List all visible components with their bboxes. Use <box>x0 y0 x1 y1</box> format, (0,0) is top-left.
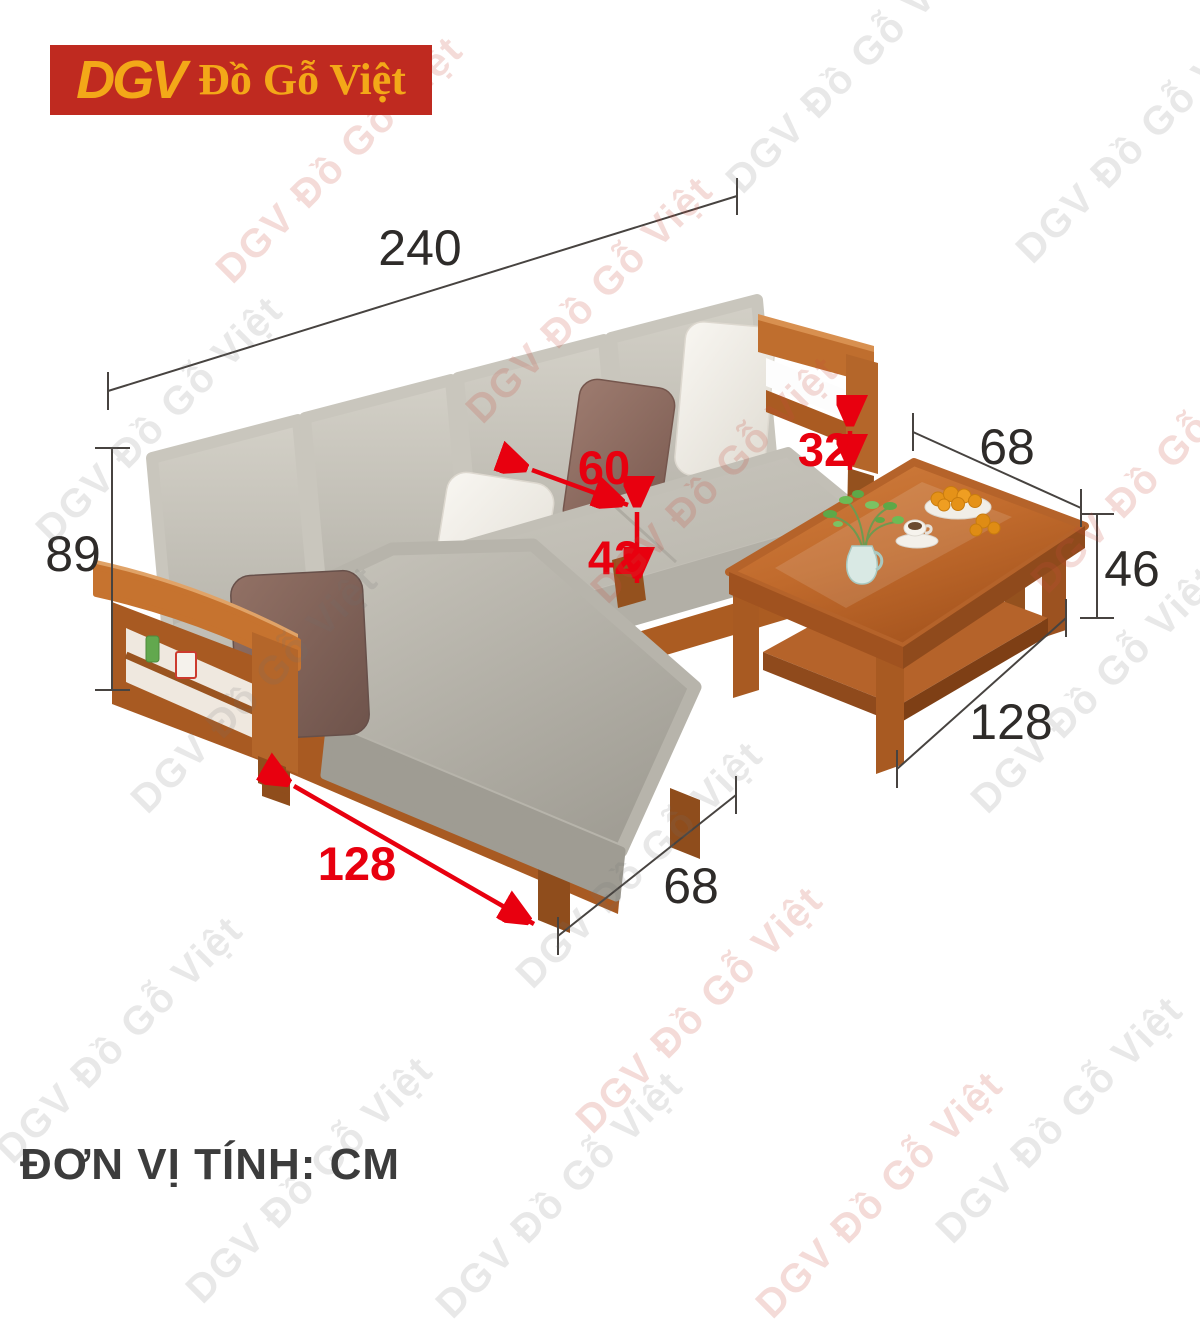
chaise-width-label: 68 <box>663 858 719 914</box>
seat-height-label: 42 <box>588 531 640 584</box>
table-length-label: 128 <box>969 694 1052 750</box>
unit-note: ĐƠN VỊ TÍNH: CM <box>20 1140 400 1190</box>
cushion-thickness-label: 32 <box>798 423 850 476</box>
shelf-bottle <box>146 636 159 662</box>
brand-logo-acronym: DGV <box>76 53 184 107</box>
sofa-width-label: 240 <box>378 220 461 276</box>
brand-logo: DGV Đồ Gỗ Việt <box>50 45 432 115</box>
sofa-illustration <box>96 300 878 933</box>
sofa-height-label: 89 <box>45 526 101 582</box>
table-height-label: 46 <box>1104 541 1160 597</box>
sofa-leg <box>670 788 700 859</box>
chaise-length-label: 128 <box>318 837 396 890</box>
shelf-book <box>176 652 196 678</box>
table-width-label: 68 <box>979 419 1035 475</box>
brand-logo-name: Đồ Gỗ Việt <box>198 58 406 102</box>
seat-depth-label: 60 <box>578 441 630 494</box>
furniture-dimension-diagram: 240 89 60 42 32 128 68 68 46 128 <box>0 0 1200 1200</box>
